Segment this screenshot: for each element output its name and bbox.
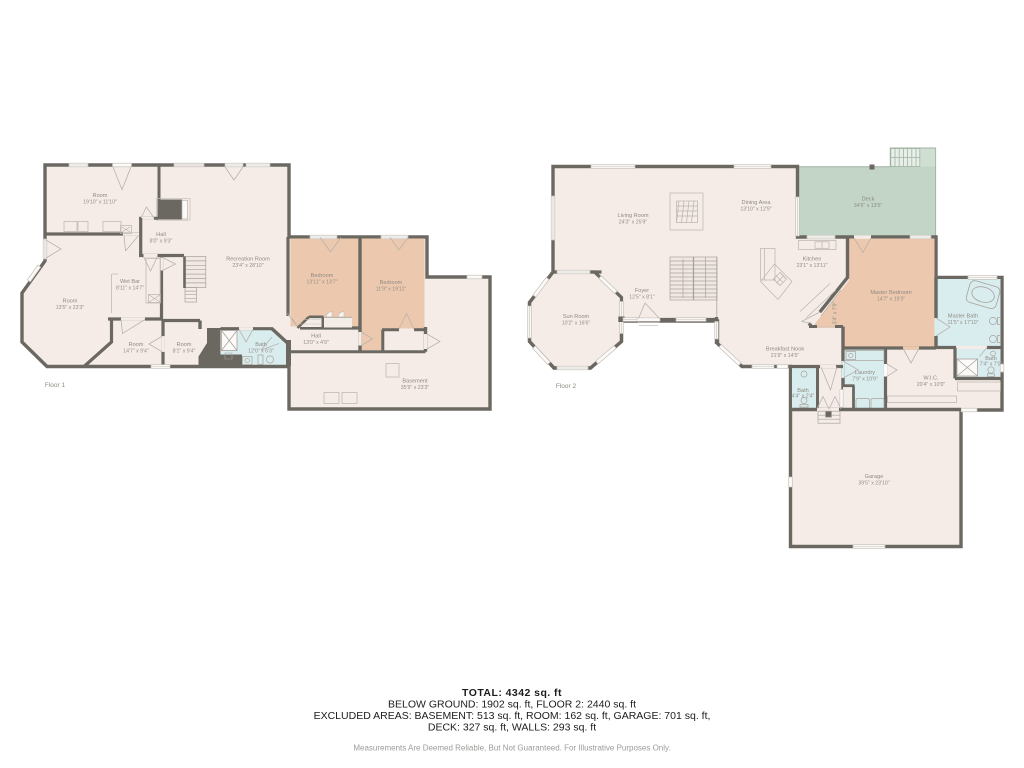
svg-text:13'0" x 4'9": 13'0" x 4'9" (303, 340, 329, 346)
svg-text:EXCLUDED AREAS: BASEMENT: 513: EXCLUDED AREAS: BASEMENT: 513 sq. ft, RO… (314, 710, 711, 722)
svg-text:Recreation Room: Recreation Room (226, 257, 270, 263)
svg-text:23'4" x 28'10": 23'4" x 28'10" (232, 263, 263, 269)
svg-text:20'4" x 10'9": 20'4" x 10'9" (917, 382, 946, 388)
svg-text:Breakfast Nook: Breakfast Nook (766, 347, 804, 353)
svg-text:24'3" x 25'9": 24'3" x 25'9" (619, 220, 648, 226)
svg-text:Living Room: Living Room (617, 213, 648, 219)
svg-text:11'5" x 17'10": 11'5" x 17'10" (948, 320, 979, 326)
svg-text:Hall: Hall (156, 232, 166, 238)
svg-text:8'11" x 14'7": 8'11" x 14'7" (116, 286, 144, 292)
svg-text:13'10" x 12'9": 13'10" x 12'9" (740, 207, 771, 213)
svg-text:23'1" x 13'11": 23'1" x 13'11" (797, 263, 828, 269)
svg-text:Room: Room (93, 193, 108, 199)
svg-text:Kitchen: Kitchen (803, 257, 822, 263)
svg-text:Room: Room (177, 342, 192, 348)
svg-text:Foyer: Foyer (635, 288, 649, 294)
svg-text:Hall: Hall (311, 334, 321, 340)
svg-text:14'7" x 9'4": 14'7" x 9'4" (123, 349, 149, 355)
svg-text:Deck: Deck (862, 197, 875, 203)
svg-text:Bedroom: Bedroom (380, 280, 403, 286)
svg-text:Bath: Bath (255, 342, 267, 348)
svg-text:39'5" x 23'10": 39'5" x 23'10" (858, 481, 889, 487)
svg-text:Sun Room: Sun Room (563, 314, 590, 320)
svg-text:10'2" x 16'6": 10'2" x 16'6" (562, 321, 591, 327)
svg-text:Master Bath: Master Bath (948, 314, 978, 320)
svg-text:Laundry: Laundry (855, 370, 875, 376)
svg-text:14'7" x 19'3": 14'7" x 19'3" (877, 297, 906, 303)
svg-text:Room: Room (129, 342, 144, 348)
svg-text:7'9" x 10'9": 7'9" x 10'9" (852, 377, 878, 383)
svg-text:12'5" x 8'1": 12'5" x 8'1" (629, 295, 655, 301)
svg-text:Measurements Are Deemed Reliab: Measurements Are Deemed Reliable, But No… (353, 744, 670, 753)
svg-text:Room: Room (63, 299, 78, 305)
svg-text:Bedroom: Bedroom (311, 273, 334, 279)
svg-text:Dining Area: Dining Area (742, 200, 772, 206)
svg-text:3'4" x 7'9": 3'4" x 7'9" (833, 302, 839, 325)
svg-text:34'6" x 13'5": 34'6" x 13'5" (854, 203, 883, 209)
svg-text:19'10" x 11'10": 19'10" x 11'10" (83, 200, 117, 206)
svg-text:35'9" x 23'3": 35'9" x 23'3" (401, 385, 430, 391)
svg-text:W.I.C.: W.I.C. (923, 376, 939, 382)
svg-text:Garage: Garage (865, 474, 884, 480)
svg-text:Wet Bar: Wet Bar (120, 279, 140, 285)
svg-text:8'1" x 9'4": 8'1" x 9'4" (173, 349, 196, 355)
svg-text:13'11" x 13'7": 13'11" x 13'7" (307, 280, 338, 286)
svg-text:13'5" x 23'3": 13'5" x 23'3" (56, 305, 85, 311)
svg-text:BELOW GROUND: 1902 sq. ft, FLO: BELOW GROUND: 1902 sq. ft, FLOOR 2: 2440… (388, 699, 636, 711)
svg-text:21'9" x 14'5": 21'9" x 14'5" (771, 353, 800, 359)
svg-text:8'0" x 9'3": 8'0" x 9'3" (150, 239, 173, 245)
svg-text:Floor 1: Floor 1 (45, 382, 66, 389)
svg-text:Basement: Basement (402, 379, 428, 385)
svg-text:DECK: 327 sq. ft, WALLS: 293 s: DECK: 327 sq. ft, WALLS: 293 sq. ft (428, 722, 596, 734)
svg-text:Master Bedroom: Master Bedroom (870, 290, 912, 296)
svg-text:7'4" x 7'0": 7'4" x 7'0" (980, 362, 1003, 368)
svg-text:4'4" x 2'4": 4'4" x 2'4" (792, 394, 815, 400)
svg-text:12'0" x 6'3": 12'0" x 6'3" (248, 349, 274, 355)
svg-text:TOTAL: 4342 sq. ft: TOTAL: 4342 sq. ft (462, 687, 562, 699)
svg-text:11'9" x 19'11": 11'9" x 19'11" (376, 287, 407, 293)
svg-text:Floor 2: Floor 2 (556, 383, 577, 390)
